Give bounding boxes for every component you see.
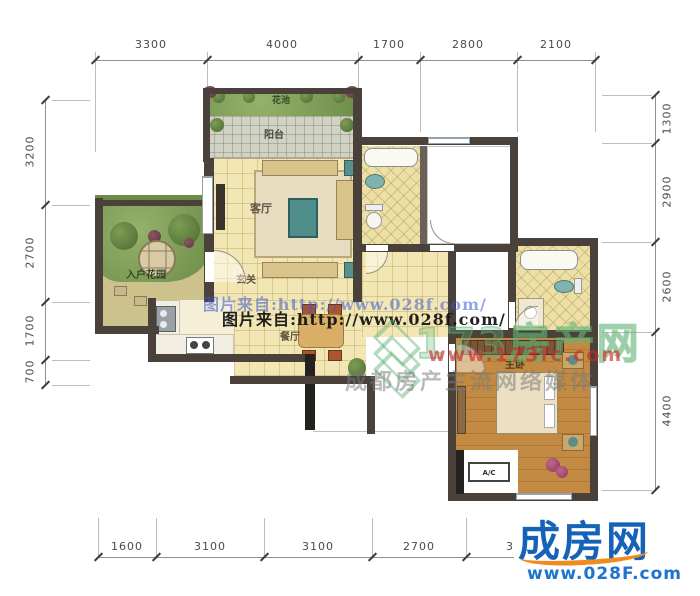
living-room-label: 客厅 [250, 200, 272, 216]
garden-shrub [110, 222, 138, 250]
dim-extension-line [595, 52, 596, 132]
dim-label-top-2: 1700 [359, 38, 419, 51]
sofa [262, 160, 338, 176]
garden-flower [184, 238, 194, 248]
dim-extension-line [52, 205, 90, 206]
toilet-tank [365, 204, 383, 211]
entry-garden-label: 入户花园 [126, 266, 166, 281]
balcony-slider-line [212, 157, 354, 159]
planter-pot [340, 118, 354, 132]
wall-segment [456, 450, 464, 494]
toilet [554, 280, 574, 293]
kitchen-sink [156, 306, 176, 332]
dim-extension-line [602, 490, 652, 491]
coffee-table [288, 198, 318, 238]
dining-room-label: 餐厅 [280, 328, 300, 343]
floor-plan-canvas: 3300 4000 1700 2800 2100 3200 2700 1700 … [0, 0, 700, 596]
dim-label-left-3: 700 [24, 352, 37, 392]
dim-line-top [95, 60, 595, 61]
dim-extension-line [52, 100, 90, 101]
dim-label-top-4: 2100 [526, 38, 586, 51]
watermark-brand-url: www.173fc.com [428, 344, 623, 366]
dim-label-top-3: 2800 [438, 38, 498, 51]
garden-chair [134, 296, 147, 306]
garden-hedge [95, 195, 213, 200]
dim-label-right-2: 2600 [661, 267, 674, 307]
dining-chair [328, 350, 342, 361]
sink-basin [160, 321, 167, 328]
dim-label-left-0: 3200 [24, 132, 37, 172]
balcony-label: 阳台 [264, 126, 284, 141]
window [516, 493, 572, 500]
dim-label-bottom-2: 3100 [288, 540, 348, 553]
flower-decor [556, 466, 568, 478]
garden-chair [114, 286, 127, 296]
dim-label-left-2: 1700 [24, 311, 37, 351]
door-gap [205, 252, 214, 282]
dim-label-bottom-1: 3100 [180, 540, 240, 553]
sink-basin [160, 310, 167, 317]
flower-bed-label: 花池 [272, 93, 290, 106]
dim-label-bottom-0: 1600 [97, 540, 157, 553]
tv-cabinet [216, 184, 225, 230]
wall-segment [95, 198, 103, 334]
pillow [544, 404, 555, 428]
dim-label-right-1: 2900 [661, 172, 674, 212]
dim-extension-line [95, 52, 96, 152]
dim-extension-line [52, 385, 90, 386]
bathtub [520, 250, 578, 270]
dim-extension-line [517, 52, 518, 132]
stove-burner [202, 341, 210, 349]
wall-segment [510, 238, 598, 246]
bathtub [364, 148, 418, 167]
dim-tick [651, 485, 660, 494]
door-gap [430, 245, 454, 251]
dim-extension-line [602, 242, 652, 243]
wall-segment [305, 354, 315, 430]
watermark-brand-slogan: 成都房产主流网络媒体 [345, 364, 595, 396]
door-gap [366, 245, 388, 251]
dim-line-left [45, 100, 46, 385]
chaise [336, 180, 354, 240]
dim-extension-line [264, 518, 265, 558]
window [202, 176, 213, 234]
ac-unit-box: A/C [468, 462, 510, 482]
wall-segment [148, 298, 156, 362]
sofa [262, 262, 338, 278]
wall-segment [148, 354, 314, 362]
dim-label-bottom-3: 2700 [389, 540, 449, 553]
dim-extension-line [602, 95, 652, 96]
toilet-tank [574, 278, 582, 294]
window [428, 137, 470, 144]
lamp [568, 437, 578, 447]
dim-tick [41, 380, 50, 389]
dim-line-right [655, 95, 656, 490]
wall-segment [420, 146, 427, 244]
planter-pot [210, 118, 224, 132]
dim-label-top-0: 3300 [121, 38, 181, 51]
wall-segment [203, 88, 210, 162]
wall-segment [510, 137, 518, 246]
dim-label-right-0: 1300 [661, 99, 674, 139]
dim-extension-line [52, 360, 90, 361]
dim-extension-line [52, 302, 90, 303]
dim-extension-line [420, 52, 421, 132]
stove-burner [190, 341, 198, 349]
wash-basin [365, 174, 385, 189]
wall-segment [353, 88, 362, 302]
dim-label-right-3: 4400 [661, 391, 674, 431]
site-logo-url: www.028F.com [527, 564, 682, 584]
dim-extension-line [602, 143, 652, 144]
dim-label-left-1: 2700 [24, 233, 37, 273]
dim-label-top-1: 4000 [252, 38, 312, 51]
dim-extension-line [466, 518, 467, 558]
toilet [366, 212, 382, 229]
dim-extension-line [372, 518, 373, 558]
void-outline [313, 431, 450, 432]
